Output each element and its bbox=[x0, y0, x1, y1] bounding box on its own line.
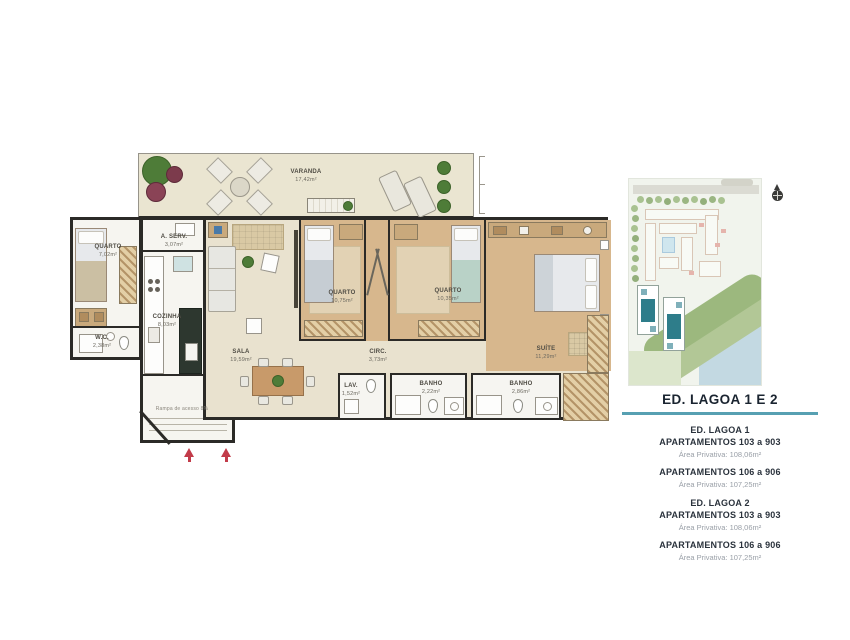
single-bed bbox=[75, 228, 107, 302]
closet-divider bbox=[366, 220, 390, 341]
room-label-quarto-1: QUARTO7,02m² bbox=[94, 244, 121, 258]
room-label-varanda: VARANDA17,42m² bbox=[291, 169, 322, 183]
rug bbox=[396, 246, 450, 314]
plant-icon bbox=[437, 161, 451, 175]
apartments-line: APARTAMENTOS 103 a 903 bbox=[622, 437, 818, 447]
toilet-icon bbox=[428, 399, 438, 413]
plant-icon bbox=[166, 166, 183, 183]
sofa bbox=[208, 246, 236, 312]
plant-icon bbox=[146, 182, 166, 202]
road bbox=[721, 179, 753, 186]
rug bbox=[232, 224, 284, 250]
bed-blanket bbox=[76, 261, 106, 301]
plant-icon bbox=[272, 375, 284, 387]
sink-icon bbox=[344, 399, 359, 414]
apartments-line: APARTAMENTOS 106 a 906 bbox=[622, 540, 818, 550]
room-label-banho-1: BANHO2,22m² bbox=[420, 381, 443, 395]
side-table bbox=[246, 318, 262, 334]
room-label-quarto-2: QUARTO10,75m² bbox=[328, 290, 355, 304]
room-label-lav: LAV.1,52m² bbox=[342, 383, 360, 397]
room-label-banho-2: BANHO2,86m² bbox=[510, 381, 533, 395]
map-building bbox=[681, 237, 693, 271]
plant-icon bbox=[437, 199, 451, 213]
outdoor-table-set bbox=[209, 160, 271, 215]
shower bbox=[476, 395, 502, 415]
trees bbox=[637, 196, 644, 203]
plant-icon bbox=[437, 180, 451, 194]
room-label-wc: W.C.2,38m² bbox=[93, 335, 111, 349]
room-label-suite: SUÍTE11,29m² bbox=[535, 346, 556, 360]
grill-counter bbox=[307, 198, 355, 213]
info-panel: ED. LAGOA 1 E 2 ED. LAGOA 1 APARTAMENTOS… bbox=[622, 392, 818, 562]
pool bbox=[662, 237, 675, 253]
vanity-sink bbox=[444, 397, 464, 415]
desk bbox=[339, 224, 363, 240]
plant-icon bbox=[242, 256, 254, 268]
bed-pillow bbox=[78, 231, 104, 244]
entry-arrow-icon bbox=[221, 448, 231, 463]
trees bbox=[631, 205, 638, 212]
map-roof bbox=[689, 271, 694, 275]
private-area-line: Área Privativa: 107,25m² bbox=[622, 553, 818, 562]
map-building bbox=[705, 215, 718, 255]
vanity-sink bbox=[535, 397, 558, 415]
room-label-aserv: A. SERV.3,07m² bbox=[161, 234, 188, 248]
private-area-line: Área Privativa: 108,06m² bbox=[622, 450, 818, 459]
suite-closet bbox=[563, 373, 609, 421]
highlighted-building-lagoa-1 bbox=[637, 285, 659, 335]
wardrobe bbox=[418, 320, 480, 337]
bed-runner bbox=[535, 255, 553, 311]
nightstand bbox=[600, 240, 609, 250]
room-quarto-3 bbox=[390, 220, 486, 341]
kitchen-island bbox=[179, 308, 202, 374]
highlighted-building-lagoa-2 bbox=[663, 297, 685, 351]
room-block-main bbox=[203, 217, 608, 420]
map-roof bbox=[715, 243, 720, 247]
green-area bbox=[629, 351, 681, 386]
room-label-cozinha: COZINHA8,03m² bbox=[153, 314, 182, 328]
room-label-circ: CIRC.3,73m² bbox=[369, 349, 387, 363]
shower bbox=[395, 395, 421, 415]
desk bbox=[394, 224, 418, 240]
bed-pillow bbox=[585, 285, 597, 309]
dimension-ruler bbox=[479, 156, 485, 214]
dresser bbox=[75, 308, 107, 328]
toilet-icon bbox=[119, 336, 129, 350]
ramp-note: Rampa de acesso 8% bbox=[156, 406, 209, 412]
map-building bbox=[659, 223, 697, 234]
map-building bbox=[659, 257, 679, 269]
bed-pillow bbox=[585, 258, 597, 282]
map-roof bbox=[699, 223, 704, 227]
bed-pillow bbox=[307, 228, 331, 241]
closet-shelf bbox=[488, 222, 607, 238]
plant-icon bbox=[343, 201, 353, 211]
wardrobe bbox=[304, 320, 363, 337]
room-label-sala: SALA19,59m² bbox=[230, 349, 252, 363]
site-map bbox=[628, 178, 762, 386]
map-building bbox=[699, 261, 721, 277]
map-roof bbox=[721, 229, 726, 233]
tv-panel bbox=[294, 230, 298, 308]
road bbox=[633, 185, 759, 194]
bed-pillow bbox=[454, 228, 478, 241]
sun-lounger bbox=[403, 176, 437, 219]
panel-title: ED. LAGOA 1 E 2 bbox=[622, 392, 818, 407]
fridge bbox=[173, 256, 193, 272]
room-label-quarto-3: QUARTO10,35m² bbox=[434, 288, 461, 302]
wall-divider bbox=[484, 220, 486, 341]
private-area-line: Área Privativa: 107,25m² bbox=[622, 480, 818, 489]
ramp-lines bbox=[149, 418, 227, 432]
wardrobe bbox=[119, 246, 137, 304]
dining-table-set bbox=[246, 358, 310, 404]
armchair bbox=[260, 253, 279, 274]
wall-divider bbox=[73, 326, 139, 328]
room-quarto-2 bbox=[299, 220, 366, 341]
private-area-line: Área Privativa: 108,06m² bbox=[622, 523, 818, 532]
toilet-icon bbox=[366, 379, 376, 393]
room-varanda bbox=[138, 153, 474, 219]
apartments-line: APARTAMENTOS 106 a 906 bbox=[622, 467, 818, 477]
apartments-line: APARTAMENTOS 103 a 903 bbox=[622, 510, 818, 520]
block-heading: ED. LAGOA 1 bbox=[622, 425, 818, 435]
toilet-icon bbox=[513, 399, 523, 413]
block-heading: ED. LAGOA 2 bbox=[622, 498, 818, 508]
brochure-page: VARANDA17,42m² QUARTO7,02m² W.C.2,38m² A… bbox=[0, 0, 850, 640]
map-building bbox=[645, 223, 656, 281]
entry-arrow-icon bbox=[184, 448, 194, 463]
double-bed bbox=[534, 254, 600, 312]
accent-rule bbox=[622, 412, 818, 415]
cabinet bbox=[208, 222, 228, 238]
suite-closet bbox=[587, 315, 609, 373]
compass-icon bbox=[770, 184, 784, 204]
